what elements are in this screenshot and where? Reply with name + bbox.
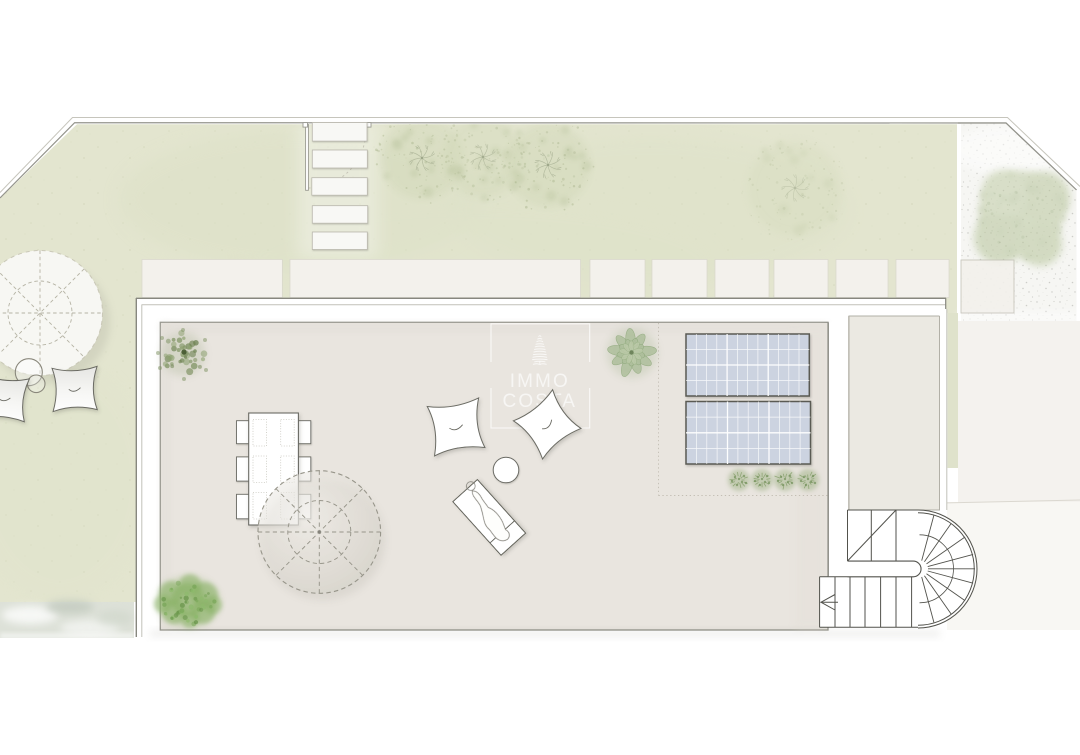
svg-text:IMMO: IMMO <box>510 371 570 392</box>
